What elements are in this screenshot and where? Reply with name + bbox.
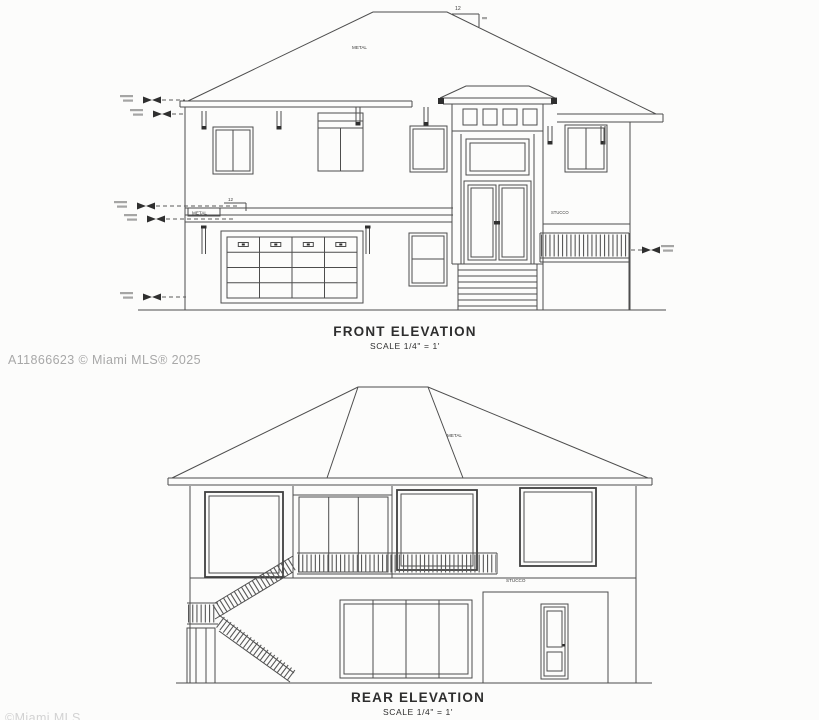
front-elevation-drawing: METAL 12: [114, 6, 674, 310]
front-lower-window: [409, 233, 447, 286]
rear-elevation-title: REAR ELEVATION: [268, 690, 568, 705]
rear-roof-material-label: METAL: [447, 433, 462, 438]
mls-watermark: A11866623 © Miami MLS® 2025: [8, 353, 201, 367]
rear-porch-sliding-doors: [293, 486, 392, 578]
front-right-railing: STUCCO: [540, 210, 629, 310]
front-roof: METAL 12: [180, 6, 663, 122]
rear-upper-windows: [205, 488, 596, 577]
front-garage-door: [221, 231, 363, 303]
front-band-annotation: METAL 12: [188, 197, 246, 216]
front-roof-material-label: METAL: [352, 45, 367, 50]
rear-roof: METAL: [168, 387, 652, 485]
rear-wall-material-label: STUCCO: [506, 578, 526, 583]
elevation-drawing-sheet: METAL 12: [0, 0, 819, 720]
rear-exterior-stairs: [187, 556, 294, 683]
rear-walls: [176, 486, 652, 683]
rear-elevation-drawing: METAL: [168, 387, 652, 683]
front-downspouts: [201, 226, 371, 255]
front-elevation-title: FRONT ELEVATION: [255, 324, 555, 339]
rear-lower-door-panel: STUCCO: [483, 578, 608, 683]
front-elevation-title-block: FRONT ELEVATION SCALE 1/4" = 1': [255, 324, 555, 351]
rear-elevation-title-block: REAR ELEVATION SCALE 1/4" = 1': [268, 690, 568, 717]
front-transom-window: [466, 139, 529, 175]
rear-lower-sliding-doors: [340, 600, 472, 678]
front-roof-slope-value: 12: [455, 6, 461, 12]
front-entry-tower: [438, 86, 557, 310]
rear-single-door: [541, 604, 568, 679]
front-double-door: [464, 181, 531, 264]
rear-elevation-scale-note: SCALE 1/4" = 1': [268, 707, 568, 717]
front-band-slope-value: 12: [228, 197, 234, 202]
front-elevation-markers: [114, 95, 674, 301]
front-wall-material-label: STUCCO: [551, 210, 569, 215]
front-entry-steps: [458, 264, 537, 310]
mls-watermark-bottom-partial: ©Miami MLS: [5, 711, 81, 720]
front-elevation-scale-note: SCALE 1/4" = 1': [255, 341, 555, 351]
front-eave-ticks: [202, 107, 606, 145]
front-band-material-label: METAL: [192, 211, 207, 216]
